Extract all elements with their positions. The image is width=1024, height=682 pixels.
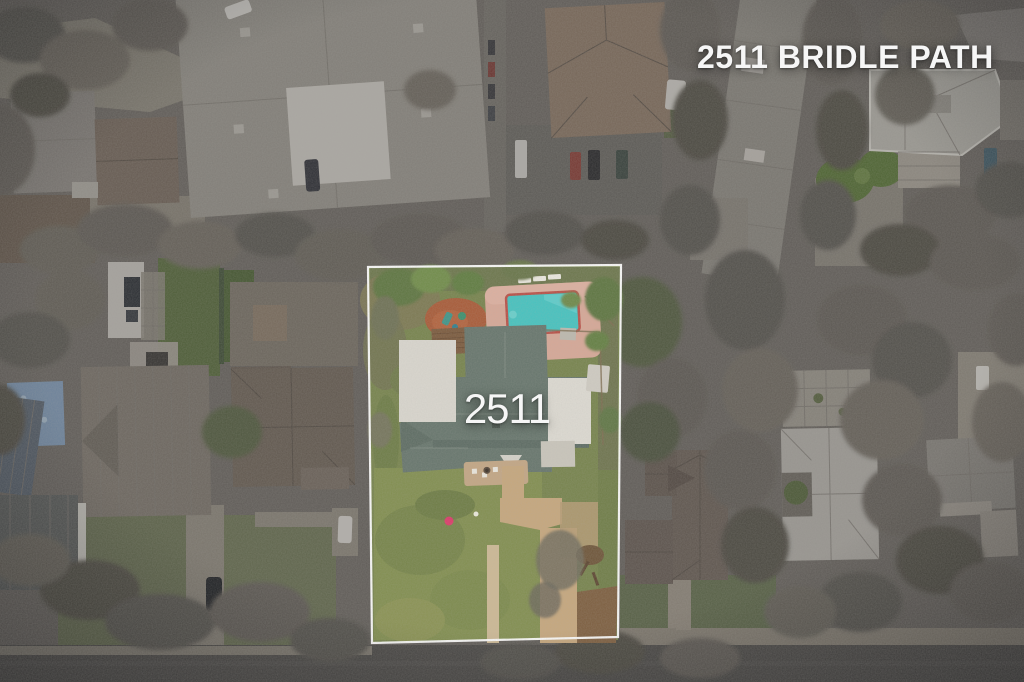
- roof-house-number-text: 2511: [452, 388, 562, 430]
- listing-address-text: 2511 BRIDLE PATH: [697, 41, 994, 73]
- aerial-photo: 2511 BRIDLE PATH 2511: [0, 0, 1024, 682]
- aerial-scene: [0, 0, 1024, 682]
- photo-grain: [0, 0, 1024, 682]
